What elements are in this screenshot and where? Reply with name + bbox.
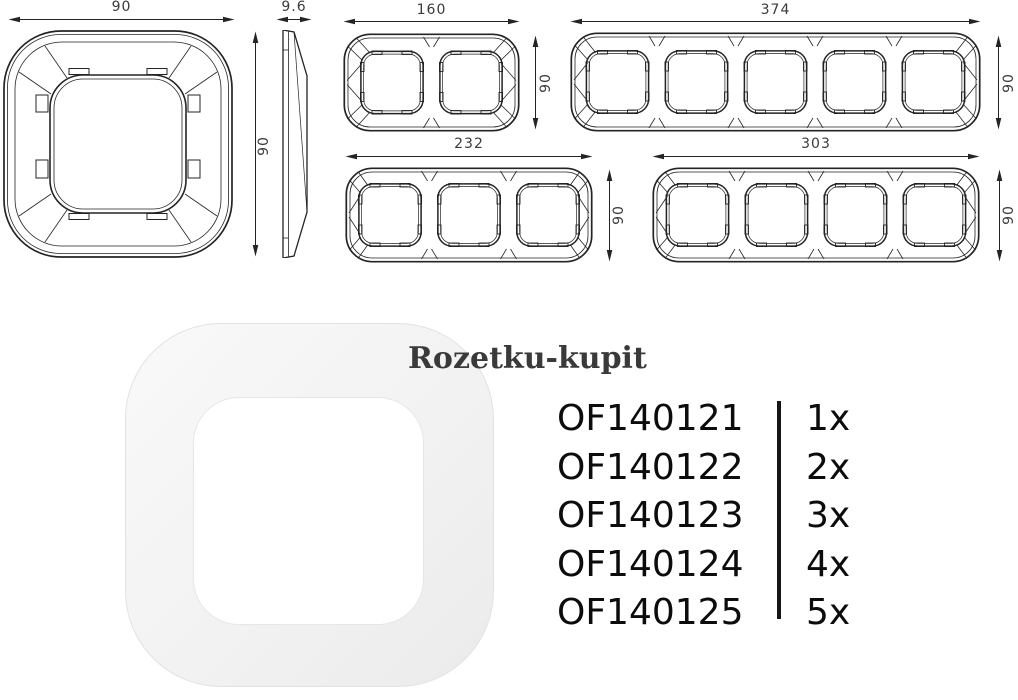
dim-arrow-3gang-width [345,152,593,161]
dim-arrow-5gang-width [570,17,981,26]
frame-3gang-drawing [345,167,593,263]
product-code: OF140123 [557,492,743,541]
frame-2gang-drawing [343,33,520,132]
product-codes-list: OF140121 OF140122 OF140123 OF140124 OF14… [557,395,743,638]
product-qty: 4x [806,541,850,590]
frame-side-profile-drawing [281,30,311,258]
single-frame-front-drawing [3,30,233,258]
dim-label-side-thickness: 9.6 [272,0,316,15]
dim-arrow-side-thickness [276,15,312,24]
product-code: OF140121 [557,395,743,444]
product-qty-list: 1x 2x 3x 4x 5x [806,395,850,638]
dim-arrow-single-width [8,15,235,24]
dim-label-side-height: 90 [256,131,272,161]
product-qty: 5x [806,589,850,638]
product-qty: 3x [806,492,850,541]
watermark-logo: Rozetku-kupit [408,341,647,376]
product-code: OF140125 [557,589,743,638]
dim-label-4gang-width: 303 [652,137,980,152]
dim-arrow-2gang-width [343,17,520,26]
dim-arrow-4gang-width [652,152,980,161]
dim-label-5gang-width: 374 [570,3,981,18]
frame-5gang-drawing [570,32,981,132]
dim-label-4gang-height: 90 [1001,200,1017,230]
dim-label-5gang-height: 90 [1001,68,1017,98]
product-code: OF140124 [557,541,743,590]
product-spec-sheet: 90 90 9.6 [0,0,1018,700]
frame-4gang-drawing [652,167,980,263]
mounting-clips [36,69,200,220]
frame-opening [193,397,424,625]
product-photo-frame [125,323,494,687]
dim-label-3gang-width: 232 [345,137,593,152]
dim-label-single-width: 90 [8,0,235,15]
product-code: OF140122 [557,444,743,493]
product-qty: 2x [806,444,850,493]
dim-label-2gang-height: 90 [538,68,554,98]
dim-label-2gang-width: 160 [343,3,520,18]
list-divider [777,401,781,619]
dim-label-3gang-height: 90 [611,200,627,230]
product-qty: 1x [806,395,850,444]
